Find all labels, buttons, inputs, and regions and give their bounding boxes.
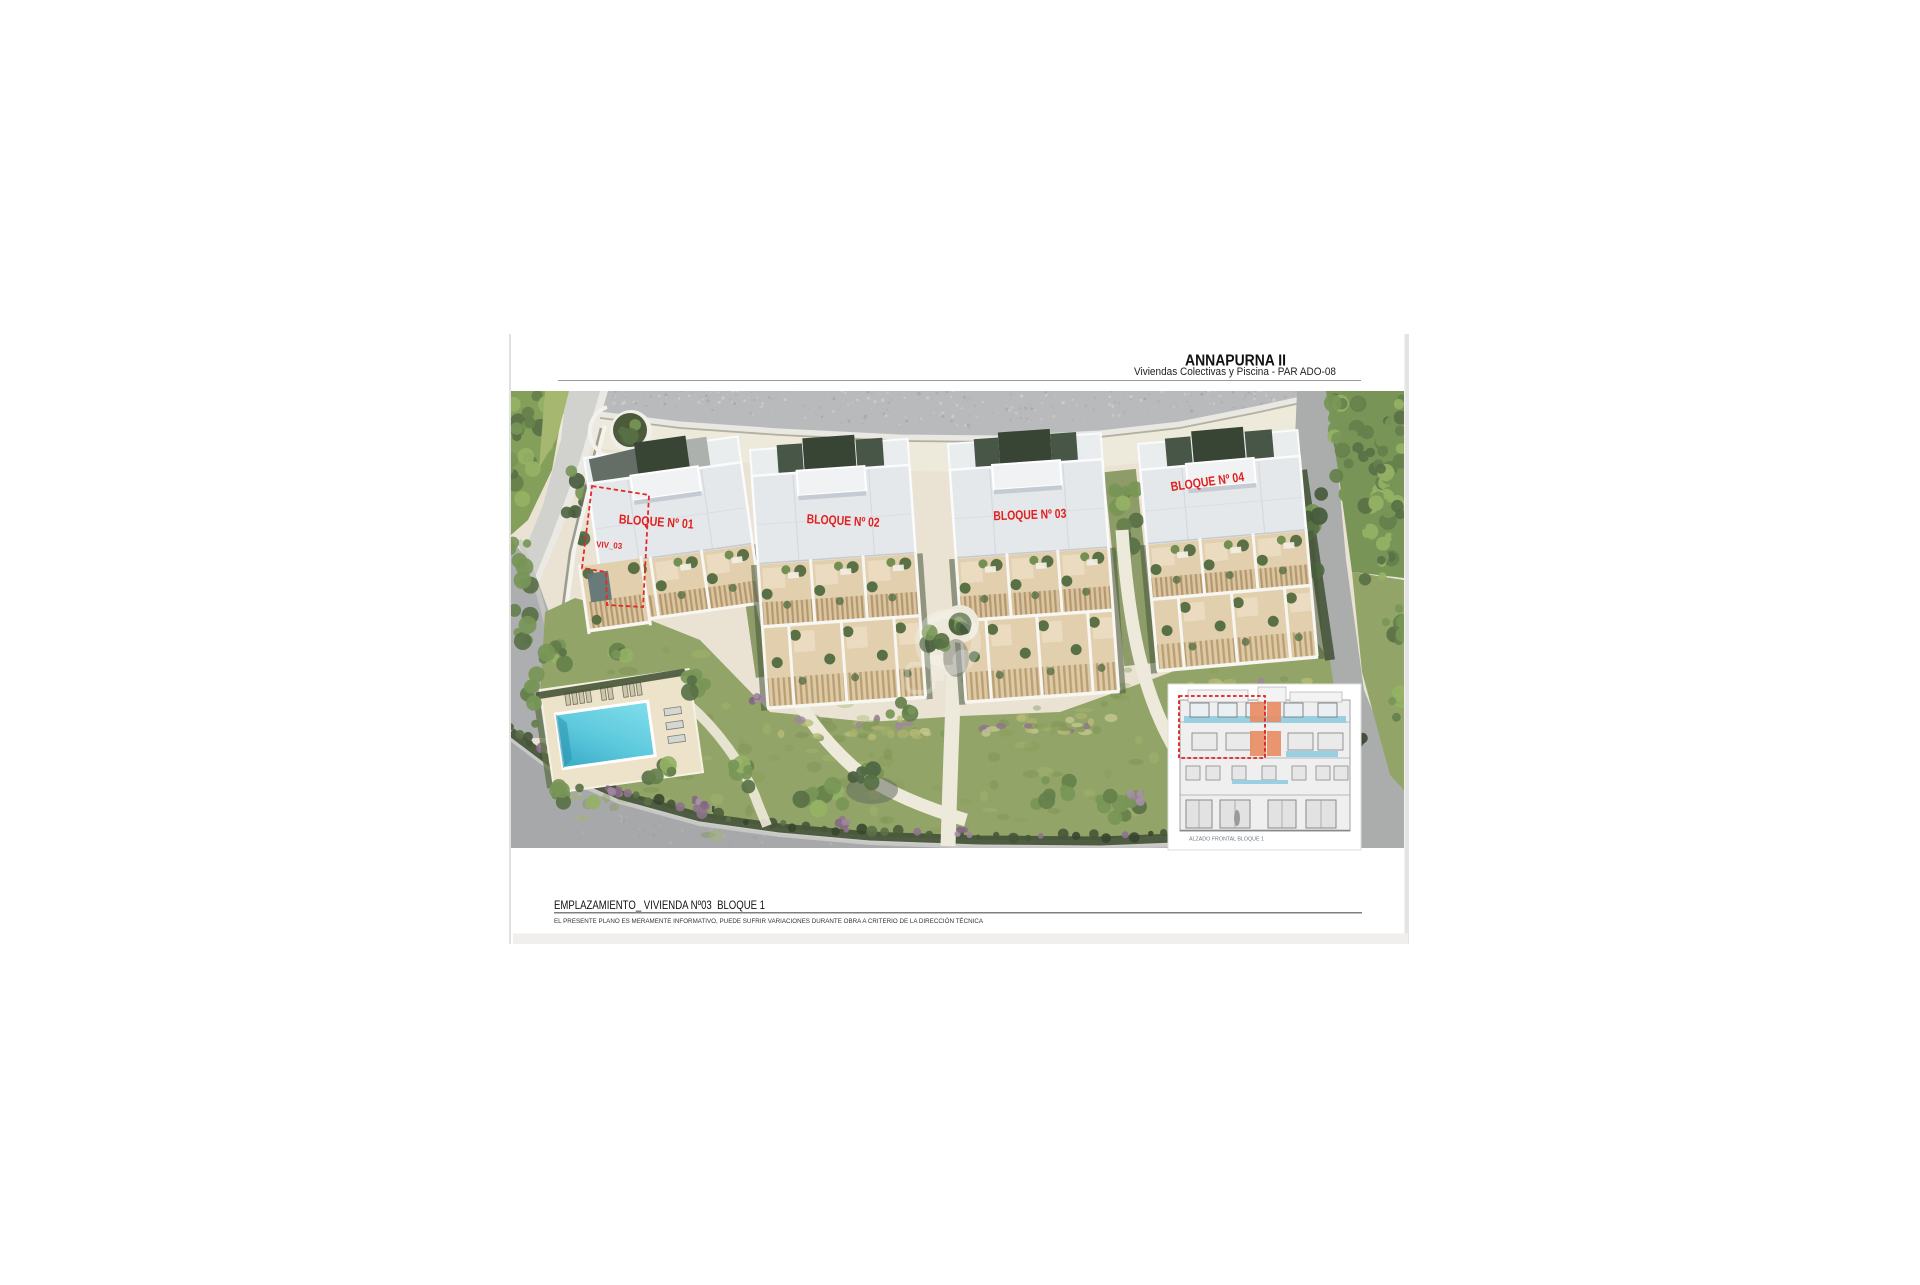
svg-text:ALZADO FRONTAL BLOQUE 1: ALZADO FRONTAL BLOQUE 1 — [1189, 837, 1264, 843]
svg-text:EMPLAZAMIENTO_ VIVIENDA Nº03: EMPLAZAMIENTO_ VIVIENDA Nº03 BLOQUE 1 — [554, 898, 765, 912]
svg-text:BLOQUE Nº 03: BLOQUE Nº 03 — [993, 506, 1066, 524]
svg-text:EL PRESENTE PLANO ES MERAMENTE: EL PRESENTE PLANO ES MERAMENTE INFORMATI… — [554, 918, 984, 925]
svg-text:VIV_03: VIV_03 — [596, 539, 623, 551]
svg-text:Viviendas Colectivas y Piscina: Viviendas Colectivas y Piscina - PAR ADO… — [1134, 366, 1336, 378]
